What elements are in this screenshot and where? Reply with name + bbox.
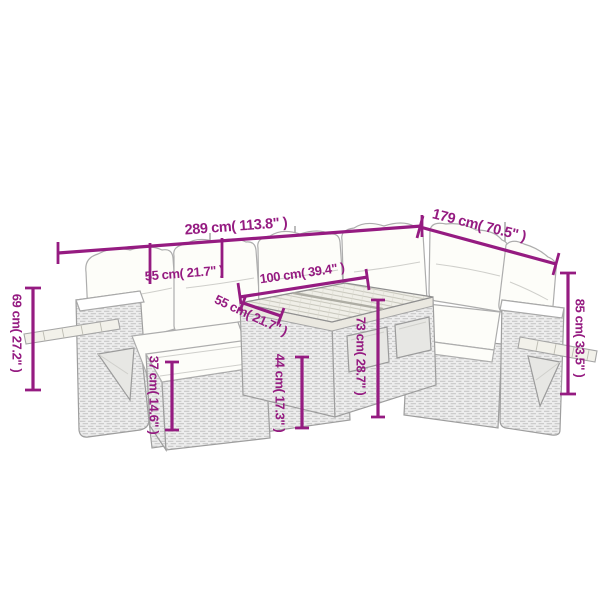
dimension-label-table-height: 73 cm( 28.7" ) xyxy=(355,317,368,396)
dimension-label-backrest-height: 85 cm( 33.5" ) xyxy=(574,299,587,378)
dimension-label-armrest-height: 69 cm( 27.2" ) xyxy=(11,294,24,373)
product-dimension-image: 289 cm( 113.8" ) 179 cm( 70.5" ) 55 cm( … xyxy=(0,0,600,600)
table-door-right xyxy=(395,317,431,358)
dimension-label-footstool-height: 37 cm( 14.6" ) xyxy=(148,356,161,435)
dimension-label-table-base-height: 44 cm( 17.3" ) xyxy=(274,354,287,433)
left-armrest xyxy=(24,291,149,437)
furniture-sketch xyxy=(0,0,600,600)
